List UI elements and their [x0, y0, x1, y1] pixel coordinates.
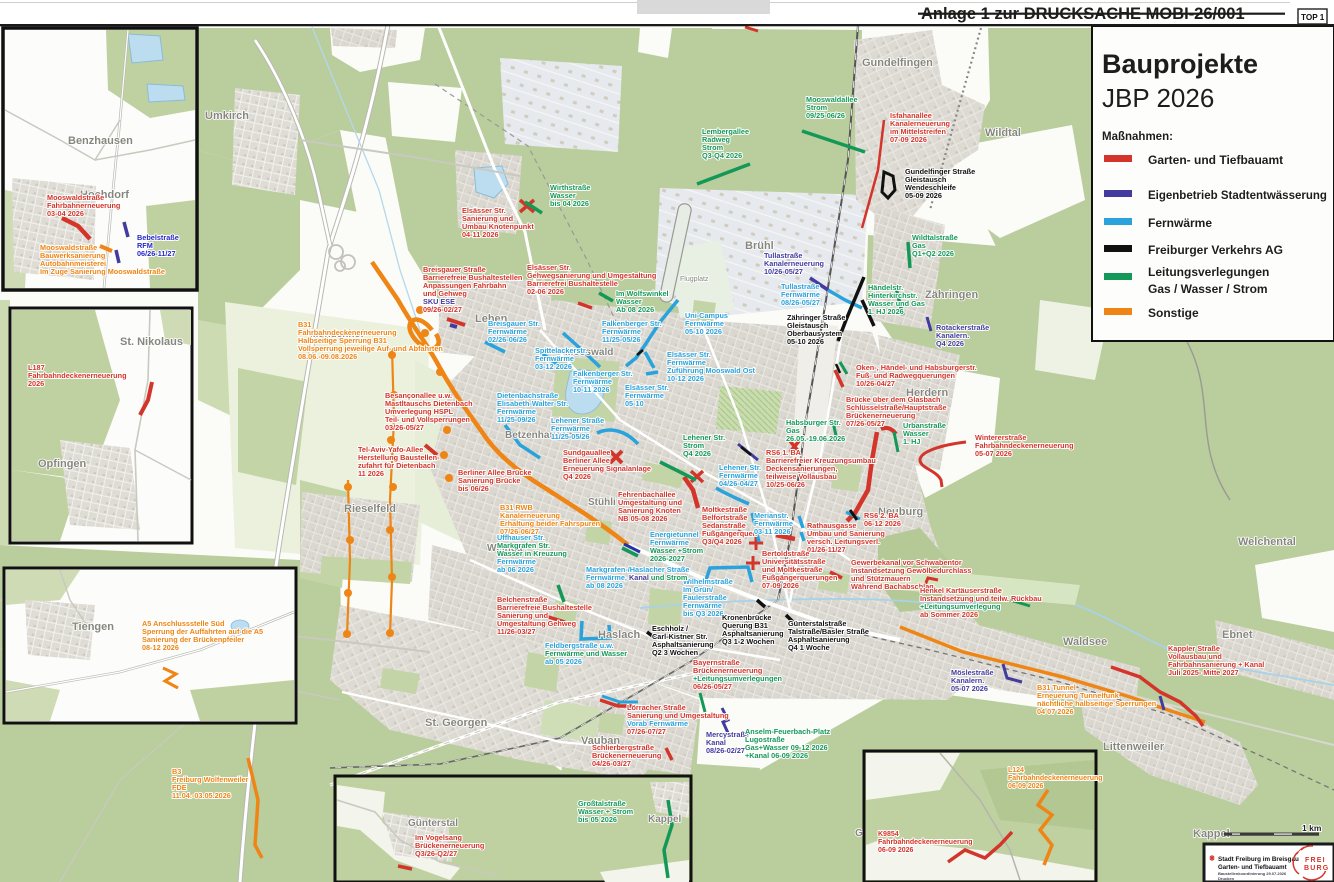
svg-text:Flugplatz: Flugplatz — [680, 276, 709, 283]
svg-text:Garten- und Tiefbauamt: Garten- und Tiefbauamt — [1148, 153, 1283, 167]
svg-text:Haslach: Haslach — [598, 629, 640, 641]
svg-text:Lehener Str.Fernwärme04/26-04/: Lehener Str.Fernwärme04/26-04/27 — [719, 463, 761, 488]
svg-text:Waldsee: Waldsee — [1063, 636, 1107, 648]
svg-text:Bauprojekte: Bauprojekte — [1102, 49, 1258, 79]
svg-text:RS6 2. BA06-12 2026: RS6 2. BA06-12 2026 — [864, 511, 901, 528]
svg-text:Ebnet: Ebnet — [1222, 629, 1253, 641]
svg-text:Umkirch: Umkirch — [205, 110, 249, 122]
svg-text:St. Nikolaus: St. Nikolaus — [120, 336, 183, 348]
svg-text:Stühli: Stühli — [588, 497, 616, 508]
svg-text:Garten- und Tiefbauamt: Garten- und Tiefbauamt — [1218, 864, 1287, 871]
svg-text:Zähringen: Zähringen — [925, 289, 978, 301]
svg-text:TullastraßeFernwärme08/26-05/2: TullastraßeFernwärme08/26-05/27 — [781, 282, 820, 307]
svg-text:Tiengen: Tiengen — [72, 621, 114, 633]
svg-text:Opfingen: Opfingen — [38, 458, 87, 470]
svg-text:1 km: 1 km — [1302, 823, 1322, 833]
svg-text:FREIBURG: FREIBURG — [1304, 857, 1329, 872]
svg-text:JBP 2026: JBP 2026 — [1102, 83, 1214, 113]
svg-text:Welchental: Welchental — [1238, 536, 1296, 548]
svg-text:Rieselfeld: Rieselfeld — [344, 503, 396, 515]
svg-text:Eigenbetrieb Stadtentwässerung: Eigenbetrieb Stadtentwässerung — [1148, 190, 1327, 202]
svg-text:Fernwärme: Fernwärme — [1148, 216, 1212, 230]
svg-text:Kappel: Kappel — [648, 814, 682, 825]
svg-text:Sonstige: Sonstige — [1148, 306, 1199, 320]
svg-text:Wildtal: Wildtal — [985, 127, 1021, 139]
svg-text:TOP 1: TOP 1 — [1301, 13, 1325, 22]
svg-text:Benzhausen: Benzhausen — [68, 135, 133, 147]
svg-text:Gundelfingen: Gundelfingen — [862, 57, 933, 69]
svg-text:Uni-CampusFernwärme05-10 2026: Uni-CampusFernwärme05-10 2026 — [685, 311, 728, 336]
svg-text:Freiburger Verkehrs AG: Freiburger Verkehrs AG — [1148, 243, 1283, 257]
svg-text:St. Georgen: St. Georgen — [425, 717, 488, 729]
svg-text:Günterstal: Günterstal — [408, 818, 458, 829]
svg-text:Littenweiler: Littenweiler — [1103, 741, 1165, 753]
svg-text:Stadt Freiburg im Breisgau: Stadt Freiburg im Breisgau — [1218, 856, 1299, 863]
svg-text:Merianstr.Fernwärme03-11 2026: Merianstr.Fernwärme03-11 2026 — [754, 511, 793, 536]
svg-text:Maßnahmen:: Maßnahmen: — [1102, 131, 1173, 143]
